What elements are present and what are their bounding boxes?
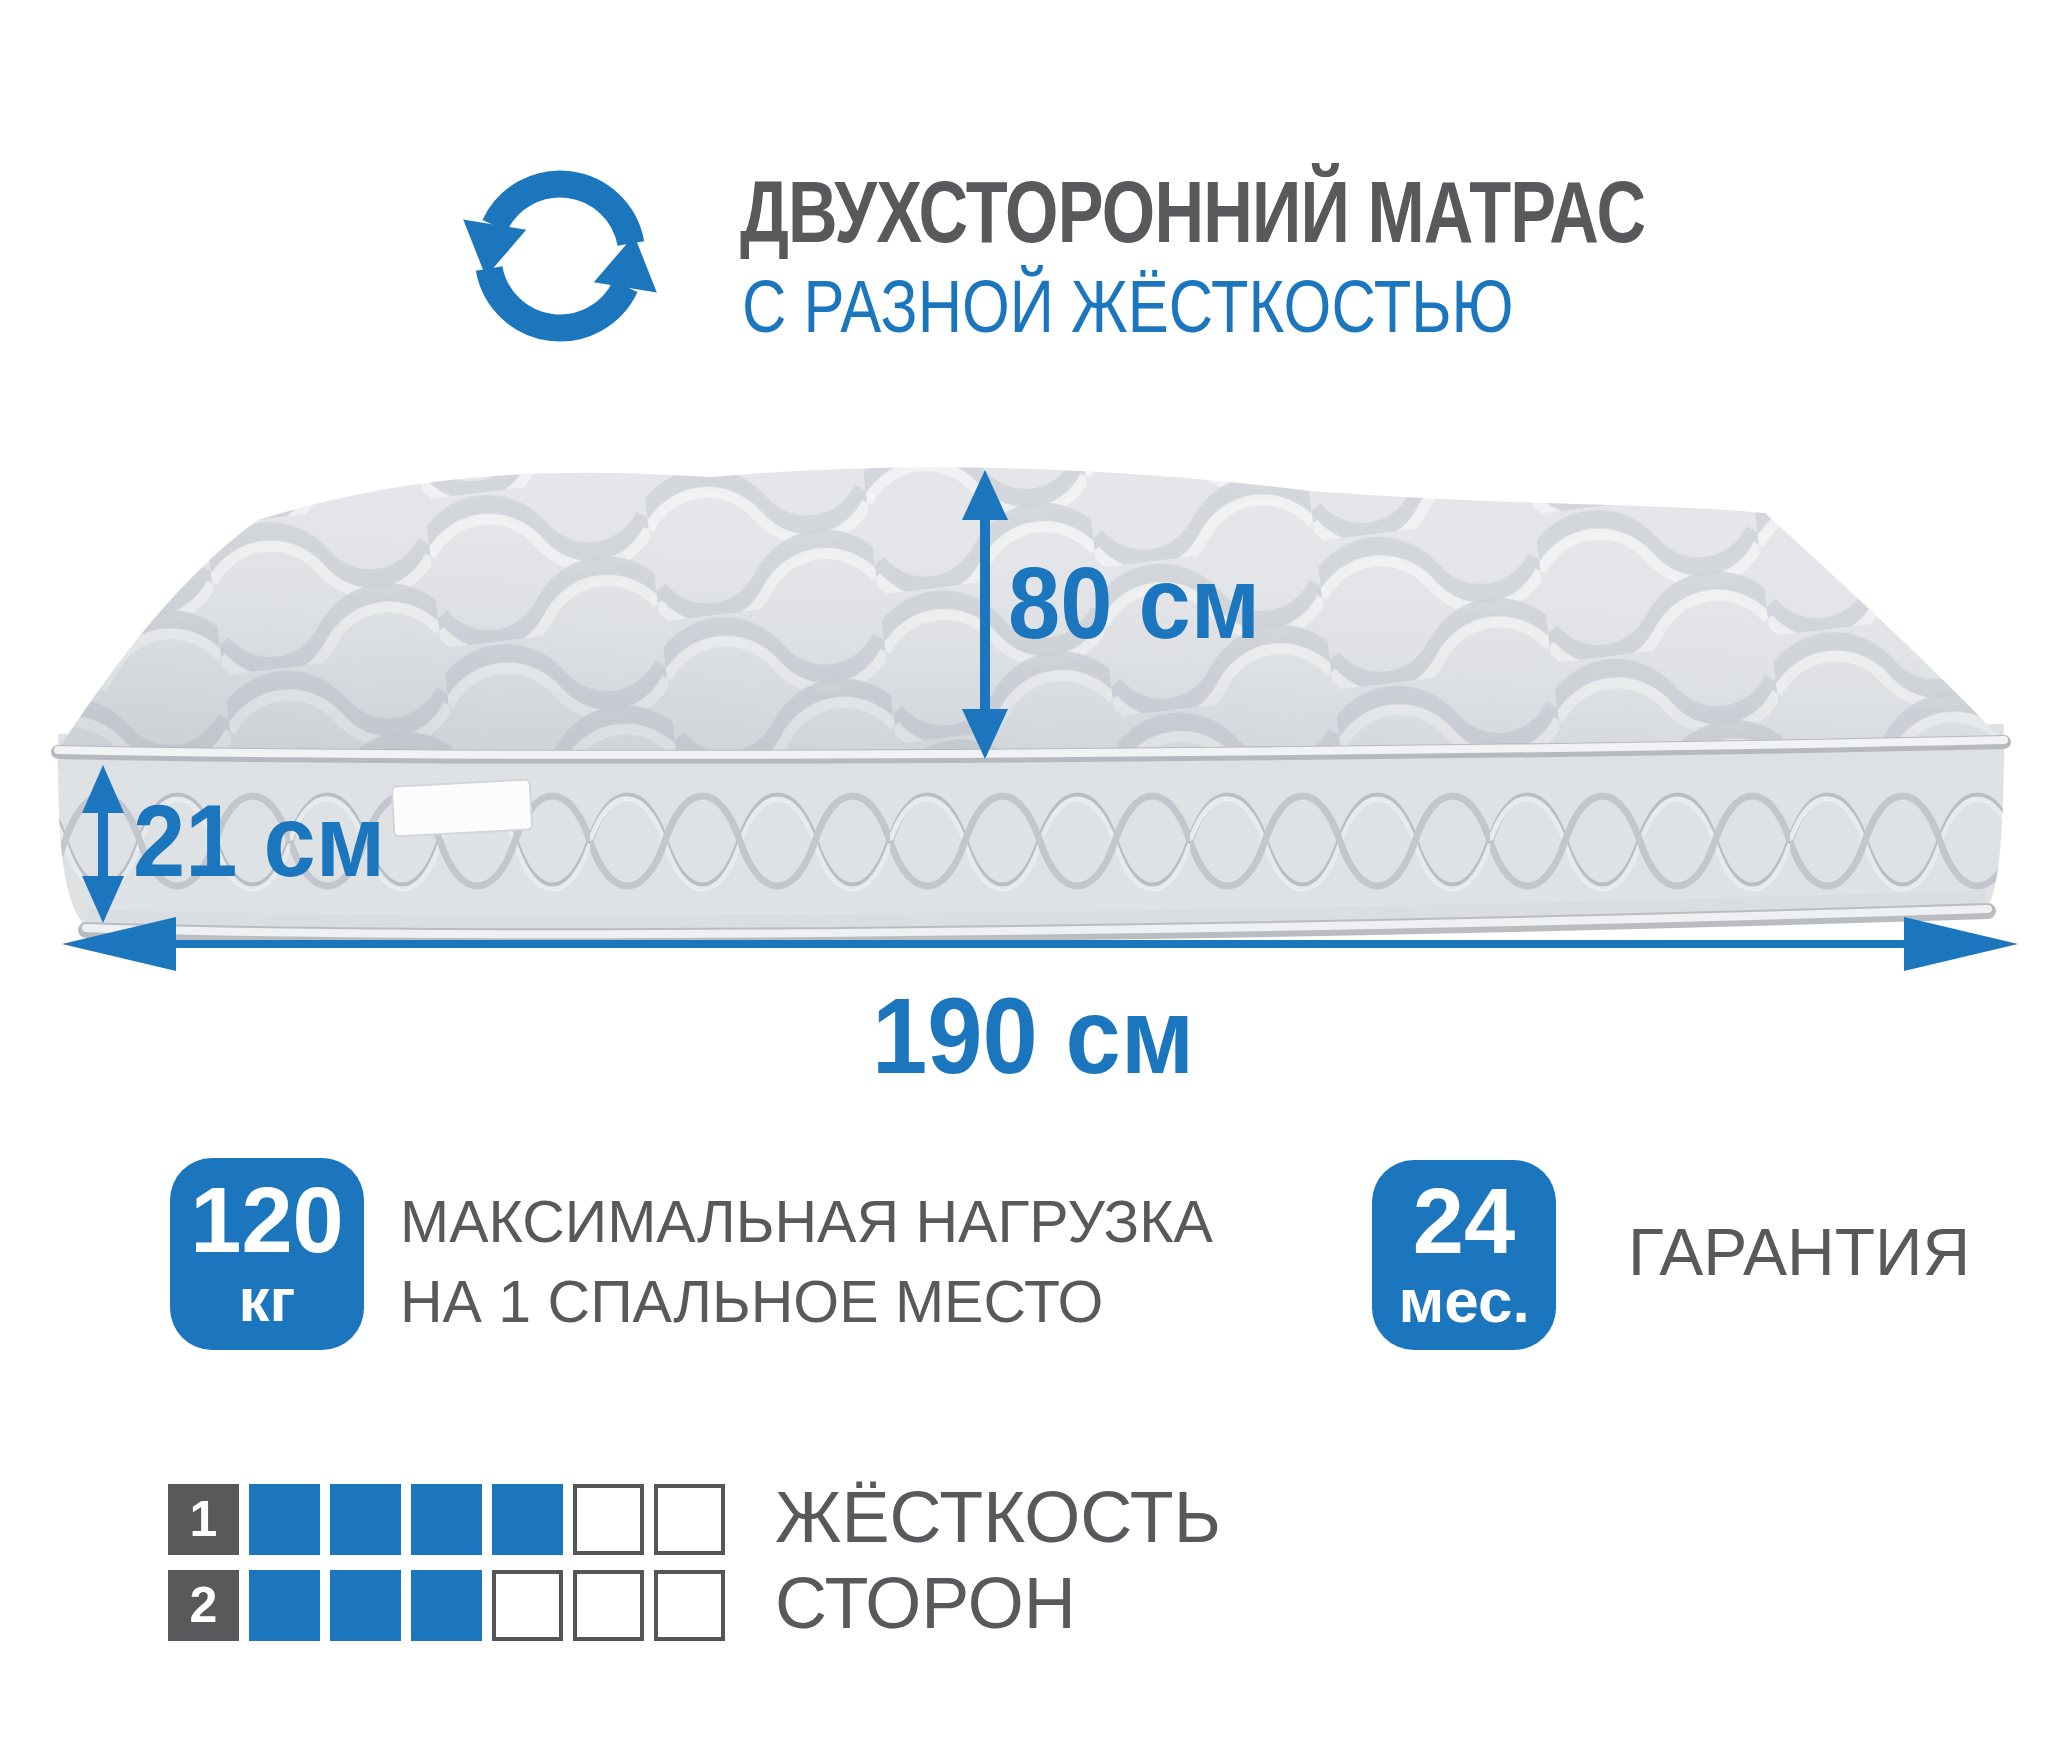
warranty-unit: мес. xyxy=(1398,1270,1529,1332)
firmness-row: 1 xyxy=(168,1484,725,1555)
firmness-cell-filled xyxy=(330,1570,401,1641)
firmness-cell-filled xyxy=(249,1570,320,1641)
firmness-cell-filled xyxy=(492,1484,563,1555)
firmness-cell-empty xyxy=(492,1570,563,1641)
max-load-caption-line1: МАКСИМАЛЬНАЯ НАГРУЗКА xyxy=(400,1182,1213,1262)
firmness-cell-filled xyxy=(249,1484,320,1555)
thickness-label: 21 см xyxy=(133,790,385,892)
firmness-caption-line2: СТОРОН xyxy=(775,1567,1076,1639)
blank-label-tag xyxy=(392,779,532,836)
firmness-rows: 12 xyxy=(168,1484,725,1656)
max-load-badge: 120 кг xyxy=(170,1158,364,1350)
max-load-caption: МАКСИМАЛЬНАЯ НАГРУЗКА НА 1 СПАЛЬНОЕ МЕСТ… xyxy=(400,1182,1213,1342)
max-load-unit: кг xyxy=(239,1269,296,1331)
firmness-side-number: 2 xyxy=(168,1570,239,1641)
height-label: 80 см xyxy=(1008,552,1260,654)
max-load-caption-line2: НА 1 СПАЛЬНОЕ МЕСТО xyxy=(400,1262,1213,1342)
firmness-cell-filled xyxy=(330,1484,401,1555)
warranty-badge: 24 мес. xyxy=(1372,1160,1556,1350)
max-load-value: 120 xyxy=(190,1177,344,1264)
firmness-caption-line1: ЖЁСТКОСТЬ xyxy=(775,1481,1221,1553)
firmness-cell-filled xyxy=(411,1570,482,1641)
width-label: 190 см xyxy=(872,982,1194,1090)
infographic-canvas: ДВУХСТОРОННИЙ МАТРАС С РАЗНОЙ ЖЁСТКОСТЬЮ xyxy=(0,0,2048,1757)
firmness-cell-empty xyxy=(573,1570,644,1641)
warranty-value: 24 xyxy=(1413,1178,1515,1265)
firmness-cell-empty xyxy=(573,1484,644,1555)
firmness-cell-filled xyxy=(411,1484,482,1555)
warranty-caption: ГАРАНТИЯ xyxy=(1628,1219,1970,1285)
firmness-row: 2 xyxy=(168,1570,725,1641)
firmness-cell-empty xyxy=(654,1484,725,1555)
firmness-side-number: 1 xyxy=(168,1484,239,1555)
firmness-cell-empty xyxy=(654,1570,725,1641)
